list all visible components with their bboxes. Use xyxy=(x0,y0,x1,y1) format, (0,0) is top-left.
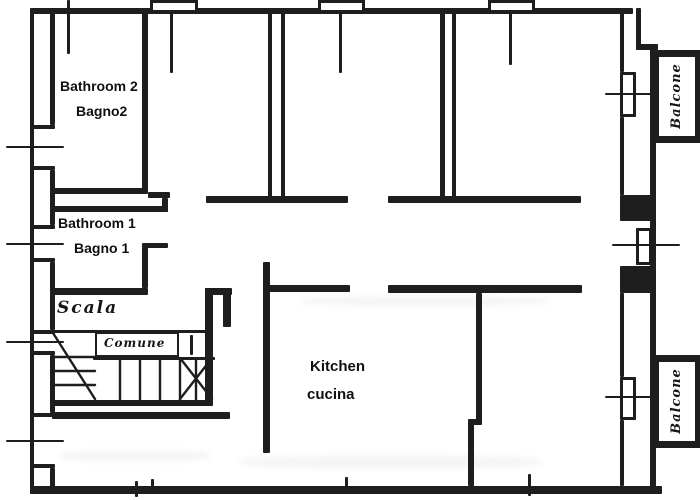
wall-tick xyxy=(339,13,342,73)
wall-tick xyxy=(170,13,173,73)
window-icon xyxy=(318,0,365,13)
window-icon xyxy=(649,228,652,265)
bathroom1-right-wall xyxy=(142,247,148,288)
door-icon xyxy=(620,377,623,420)
scan-smudge xyxy=(300,296,550,306)
wall-segment xyxy=(50,170,55,225)
bathroom2-label-en: Bathroom 2 xyxy=(60,78,138,94)
bathroom2-bottom-wall xyxy=(52,188,148,194)
wall-pillar xyxy=(620,266,654,293)
wall-segment xyxy=(620,293,624,377)
scan-smudge xyxy=(240,455,540,469)
wall-segment xyxy=(440,12,445,198)
kitchen-left-wall xyxy=(263,262,270,453)
kitchen-right-wall xyxy=(476,293,482,423)
wall-segment xyxy=(452,12,456,198)
window-icon xyxy=(30,225,55,229)
balcony-top-label: Balcone xyxy=(669,56,685,136)
bathroom2-label-it: Bagno2 xyxy=(76,103,127,119)
wall-segment xyxy=(268,12,272,198)
wall-segment xyxy=(468,423,474,486)
window-icon xyxy=(150,0,198,13)
floor-plan-canvas: Balcone Balcone xyxy=(0,0,700,500)
balcony-bottom-label: Balcone xyxy=(669,361,685,441)
kitchen-label-it: cucina xyxy=(307,386,355,403)
exterior-wall-bottom xyxy=(30,486,662,494)
wall-tick xyxy=(528,474,531,496)
kitchen-label-en: Kitchen xyxy=(310,358,365,375)
wall-segment xyxy=(53,333,95,399)
window-icon xyxy=(30,258,55,262)
wall-segment xyxy=(620,8,624,72)
wall-tick xyxy=(135,481,138,497)
corridor-wall xyxy=(263,285,350,292)
window-icon xyxy=(30,166,55,170)
window-icon xyxy=(30,125,55,129)
stairwell-top-wall xyxy=(52,288,148,295)
corridor-wall xyxy=(206,196,348,203)
window-sill-line xyxy=(612,244,680,246)
door-icon xyxy=(633,377,636,420)
bathroom2-right-wall xyxy=(142,12,148,192)
window-sill-line xyxy=(6,440,64,442)
scan-smudge xyxy=(60,450,210,462)
bathroom1-top-wall xyxy=(52,206,168,212)
window-sill-line xyxy=(6,243,64,245)
wall-pillar xyxy=(620,195,654,221)
wall-segment xyxy=(620,114,636,117)
common-area-label: Comune xyxy=(104,336,165,350)
wall-segment xyxy=(50,262,55,330)
corridor-wall xyxy=(388,196,581,203)
wall-segment xyxy=(636,228,652,231)
wall-segment xyxy=(620,377,636,380)
exterior-wall-left xyxy=(30,8,34,494)
wall-segment xyxy=(620,420,624,486)
wall-segment xyxy=(620,117,624,195)
wall-segment xyxy=(636,262,652,265)
wall-segment xyxy=(620,417,636,420)
wall-tick xyxy=(509,13,512,65)
bathroom1-label-it: Bagno 1 xyxy=(74,240,129,256)
wall-segment xyxy=(50,8,55,125)
wall-tick xyxy=(151,479,154,487)
wall-tick xyxy=(67,0,70,54)
corridor-wall xyxy=(388,285,582,293)
window-icon xyxy=(636,228,639,265)
wall-segment xyxy=(223,293,231,327)
stairs-label: Scala xyxy=(57,298,118,318)
wall-segment xyxy=(620,72,636,75)
wall-segment xyxy=(50,468,55,488)
window-sill-line xyxy=(6,146,64,148)
room-top-wall xyxy=(52,412,230,419)
window-icon xyxy=(488,0,535,13)
wall-segment xyxy=(281,12,285,203)
wall-tick xyxy=(345,477,348,487)
bathroom1-label-en: Bathroom 1 xyxy=(58,215,136,231)
window-icon xyxy=(30,464,55,468)
